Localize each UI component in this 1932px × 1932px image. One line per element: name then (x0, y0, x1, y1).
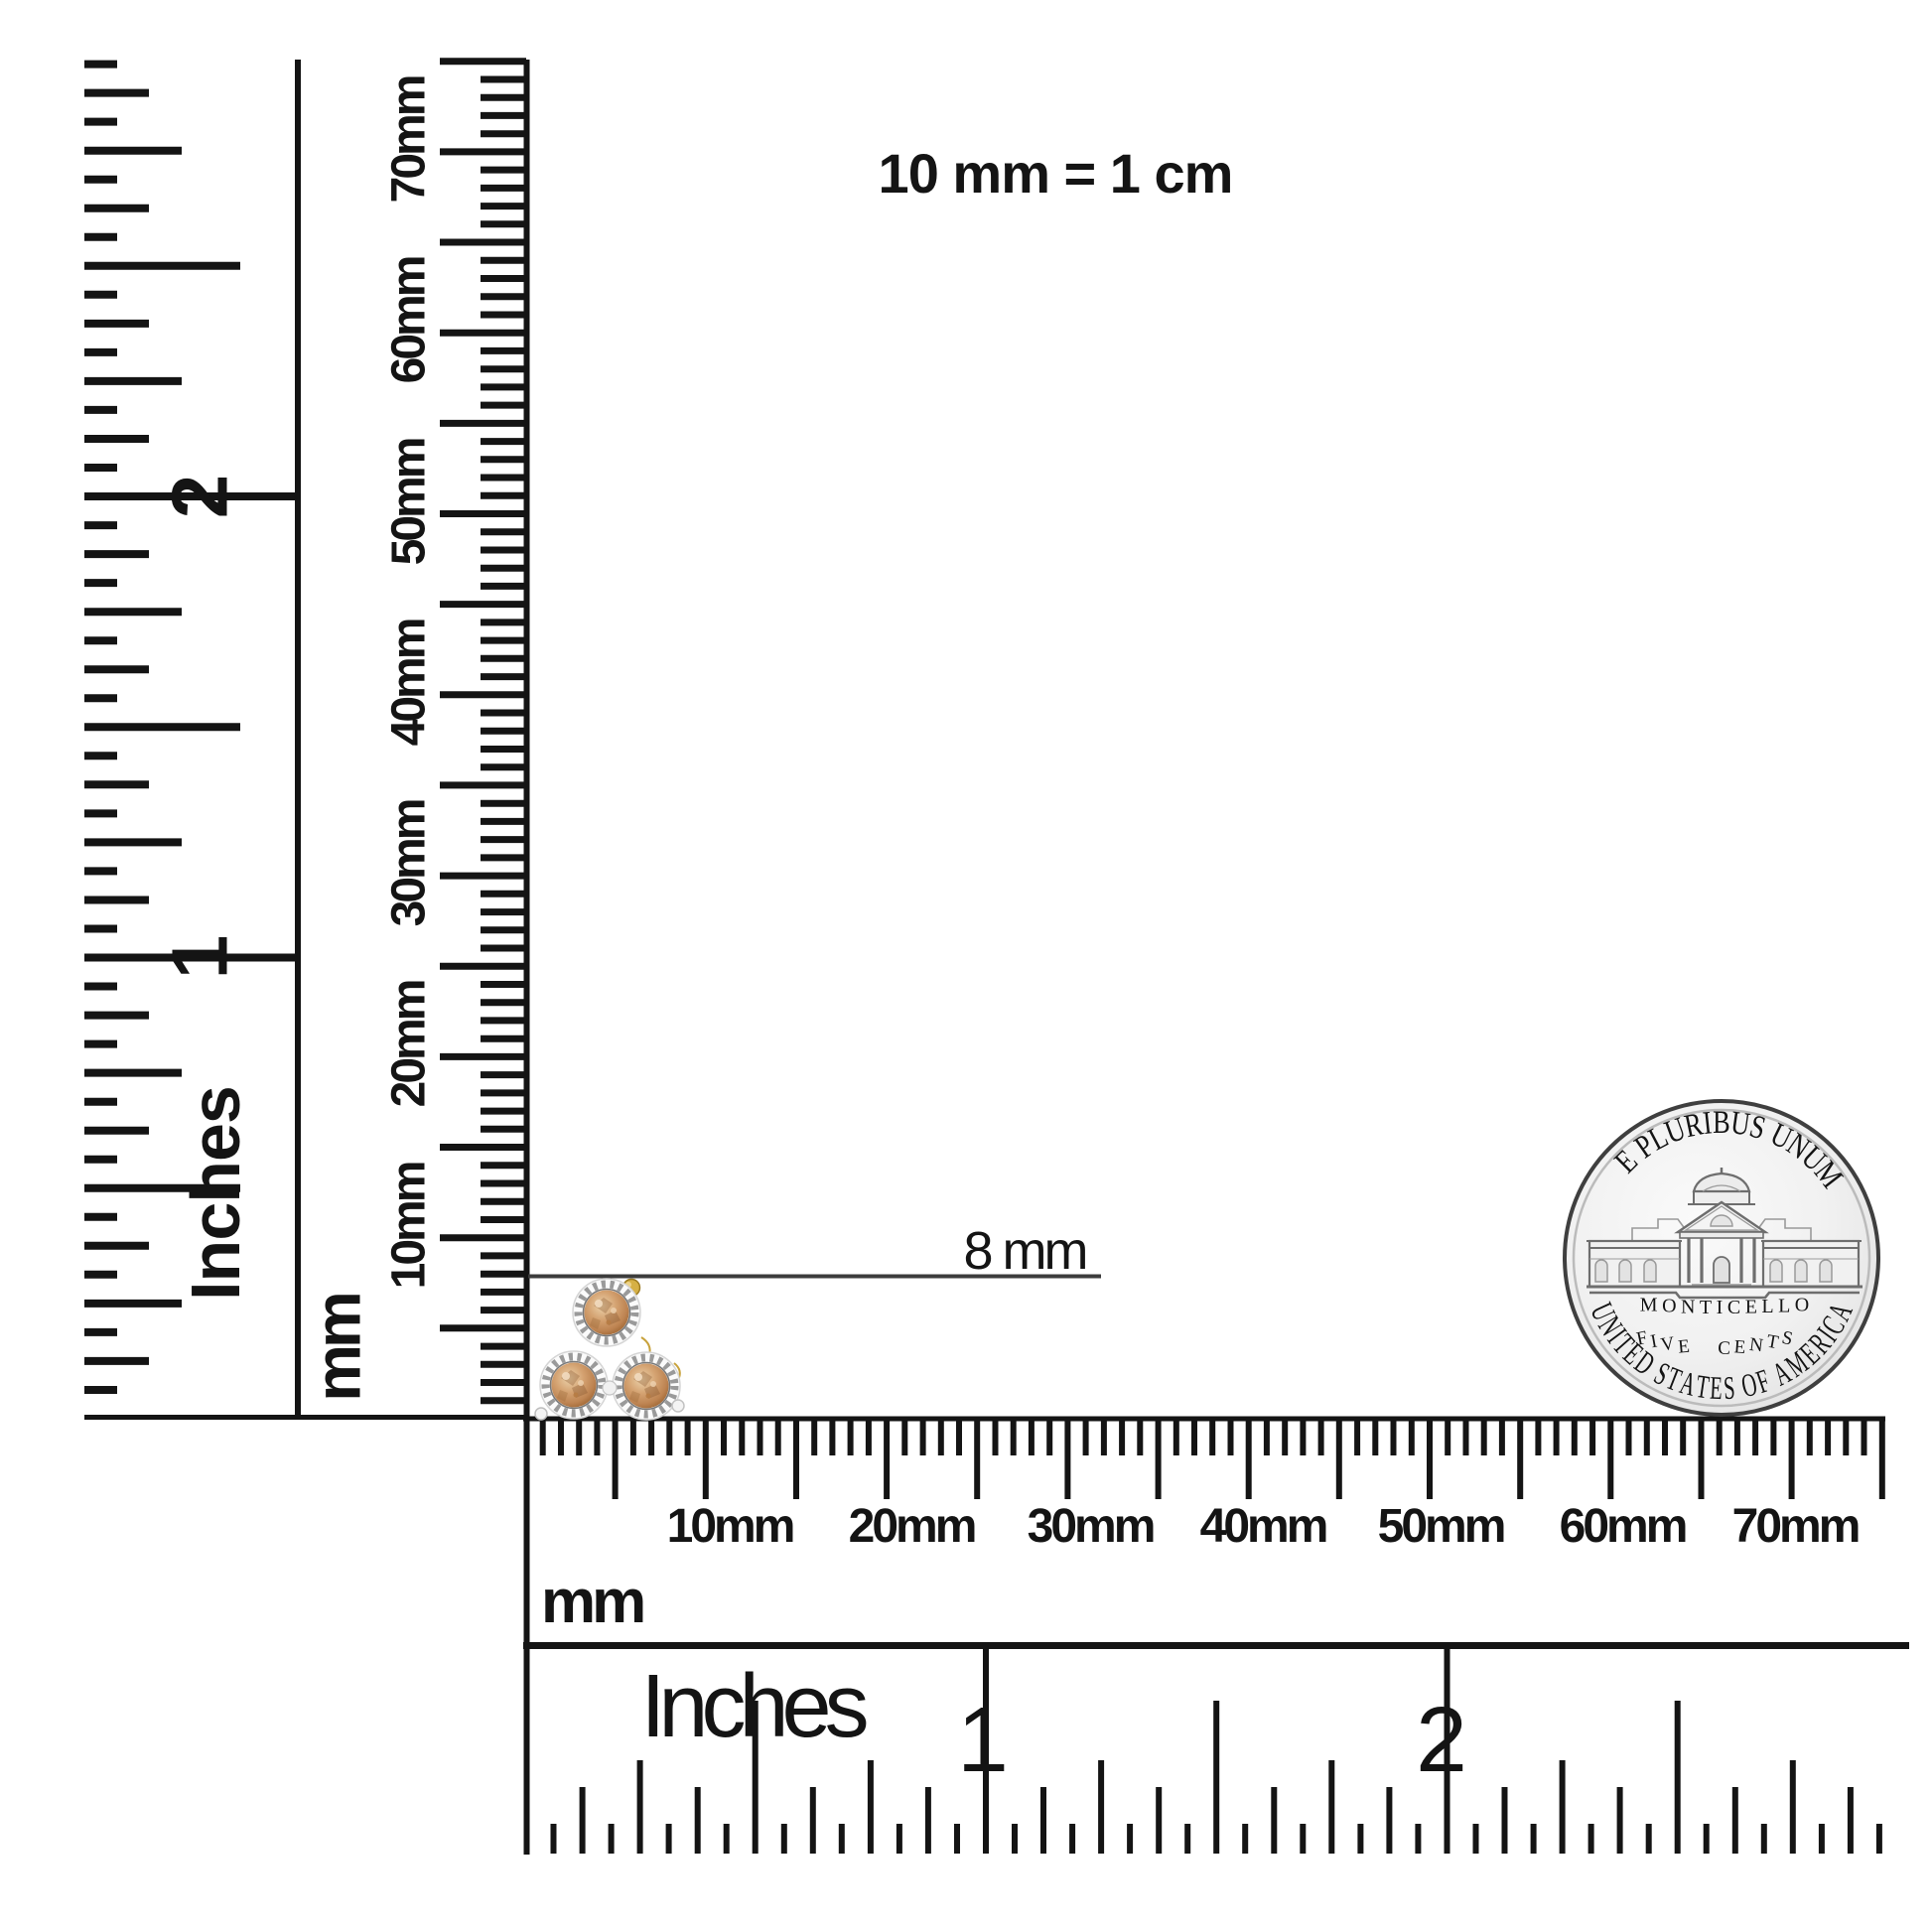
svg-text:E: E (1745, 1297, 1757, 1318)
svg-text:50mm: 50mm (1378, 1500, 1504, 1553)
svg-text:E: E (1710, 1370, 1724, 1407)
svg-text:8 mm: 8 mm (964, 1221, 1086, 1281)
svg-text:B: B (1713, 1104, 1730, 1140)
svg-text:10 mm = 1 cm: 10 mm = 1 cm (879, 142, 1233, 205)
svg-text:T: T (1700, 1297, 1712, 1318)
svg-text:2: 2 (156, 475, 244, 519)
svg-text:10mm: 10mm (383, 1163, 436, 1289)
svg-text:70mm: 70mm (1732, 1500, 1859, 1553)
svg-text:Inches: Inches (177, 1086, 254, 1301)
svg-text:O: O (1662, 1296, 1676, 1317)
svg-text:60mm: 60mm (1560, 1500, 1686, 1553)
svg-text:30mm: 30mm (383, 800, 436, 926)
svg-text:O: O (1795, 1295, 1809, 1316)
svg-text:C: C (1718, 1338, 1730, 1359)
svg-text:2: 2 (1416, 1688, 1467, 1791)
svg-text:C: C (1727, 1297, 1740, 1318)
svg-text:10mm: 10mm (667, 1500, 793, 1553)
svg-text:20mm: 20mm (383, 981, 436, 1107)
svg-text:S: S (1723, 1370, 1735, 1407)
svg-text:M: M (1640, 1295, 1658, 1316)
svg-text:40mm: 40mm (383, 620, 436, 746)
svg-text:I: I (1717, 1297, 1724, 1318)
svg-text:L: L (1761, 1296, 1773, 1317)
svg-text:70mm: 70mm (383, 76, 436, 203)
svg-text:Inches: Inches (640, 1657, 866, 1756)
svg-text:E: E (1733, 1336, 1746, 1358)
svg-text:30mm: 30mm (1028, 1500, 1154, 1553)
svg-text:L: L (1778, 1296, 1790, 1317)
svg-text:1: 1 (156, 935, 244, 980)
svg-text:20mm: 20mm (849, 1500, 975, 1553)
svg-text:50mm: 50mm (383, 439, 436, 565)
svg-text:mm: mm (302, 1295, 374, 1402)
svg-text:mm: mm (541, 1568, 643, 1636)
svg-text:1: 1 (957, 1688, 1009, 1791)
svg-text:N: N (1681, 1296, 1695, 1317)
svg-text:40mm: 40mm (1200, 1500, 1326, 1553)
svg-text:E: E (1677, 1336, 1690, 1358)
svg-text:60mm: 60mm (383, 257, 436, 383)
svg-text:N: N (1748, 1334, 1764, 1357)
